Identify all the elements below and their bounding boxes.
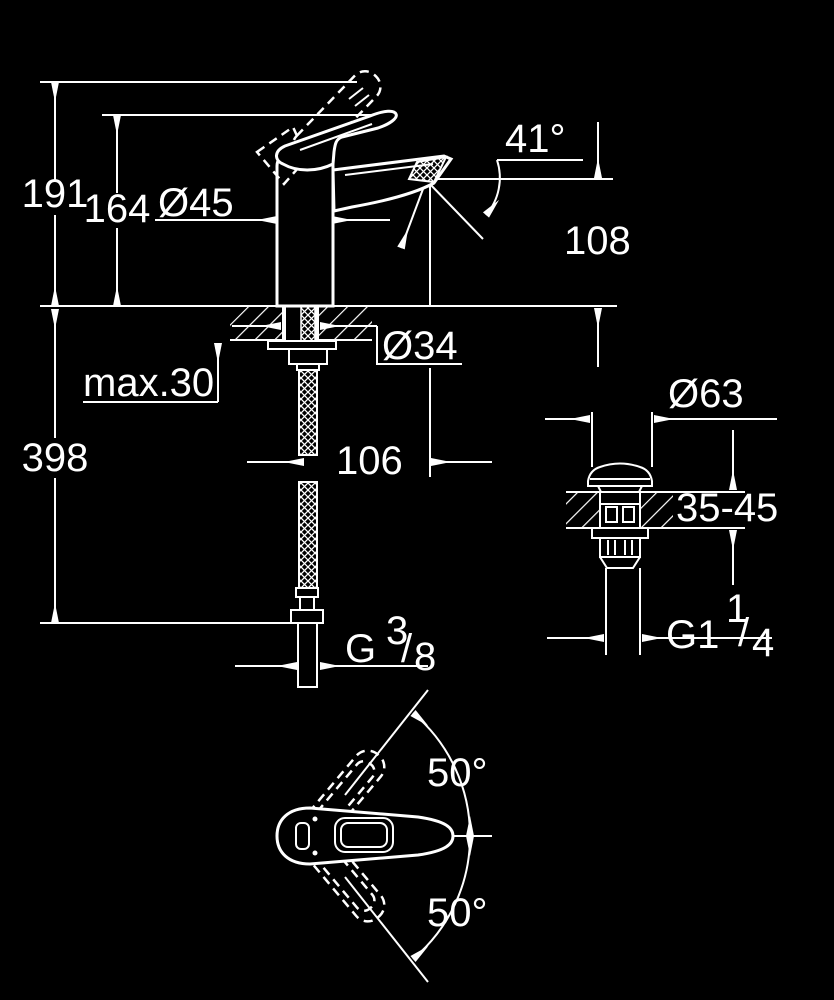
flex-hose-lower	[299, 482, 317, 588]
aerator-plane-line	[428, 182, 483, 239]
handle-rest-outline	[276, 111, 396, 170]
dim-label-max30: max.30	[83, 361, 214, 405]
basin-hatch-right	[640, 493, 673, 527]
waste-cap	[588, 464, 652, 487]
deck-hatch-left	[230, 307, 283, 340]
handle-dot-bottom	[313, 851, 318, 856]
dim-label-d34: Ø34	[382, 324, 458, 368]
mounting-washer	[268, 341, 336, 349]
dim-label-g114: G1 1 / 4	[666, 587, 774, 665]
swing-line-down	[345, 877, 428, 982]
dim-label-164: 164	[84, 187, 151, 231]
dim-label-d45: Ø45	[158, 181, 234, 225]
dim-label-3545: 35-45	[676, 486, 778, 530]
handle-top-view	[277, 690, 492, 982]
dim-label-g38: G 3 / 8	[345, 609, 436, 679]
handle-raised-tip-mark-2	[355, 95, 369, 106]
flex-hose-upper	[299, 370, 317, 455]
technical-drawing-page: 191 164 398 Ø45 41° 108 max.30 Ø34 106 G…	[0, 0, 834, 1000]
dim-label-108: 108	[564, 219, 631, 263]
dim-label-41: 41°	[505, 117, 566, 161]
mounting-and-hose	[268, 306, 336, 687]
dim-label-50-down: 50°	[427, 891, 488, 935]
waste-taper	[600, 557, 640, 568]
mounting-nut	[289, 349, 327, 364]
dim-label-191: 191	[22, 172, 89, 216]
swing-line-up	[345, 690, 428, 795]
faucet-dimension-drawing: 191 164 398 Ø45 41° 108 max.30 Ø34 106 G…	[0, 0, 834, 1000]
dim-41-arc	[486, 160, 500, 215]
waste-clamp	[600, 538, 640, 557]
waste-neck	[598, 486, 642, 492]
hose-connector-pipe	[298, 623, 317, 687]
handle-raised-tip-mark-1	[349, 88, 363, 99]
handle-front-slot	[296, 823, 309, 849]
deck-hatch-right	[318, 307, 372, 340]
dim-label-106: 106	[336, 439, 403, 483]
basin-hatch-left	[566, 493, 600, 527]
hose-end-collar	[296, 588, 318, 597]
faucet-body	[277, 156, 333, 306]
waste-slot-right	[623, 507, 634, 522]
handle-dot-top	[313, 817, 318, 822]
waste-slot-left	[606, 507, 617, 522]
faucet-side-view	[257, 65, 451, 306]
handle-grip-inner	[341, 823, 387, 847]
dim-label-d63: Ø63	[668, 372, 744, 416]
dim-label-398: 398	[22, 436, 89, 480]
hose-end-tube	[300, 597, 314, 610]
hose-end-nut	[291, 610, 323, 623]
dim-label-50-up: 50°	[427, 751, 488, 795]
waste-flange	[592, 528, 648, 538]
threaded-stud	[301, 306, 315, 341]
